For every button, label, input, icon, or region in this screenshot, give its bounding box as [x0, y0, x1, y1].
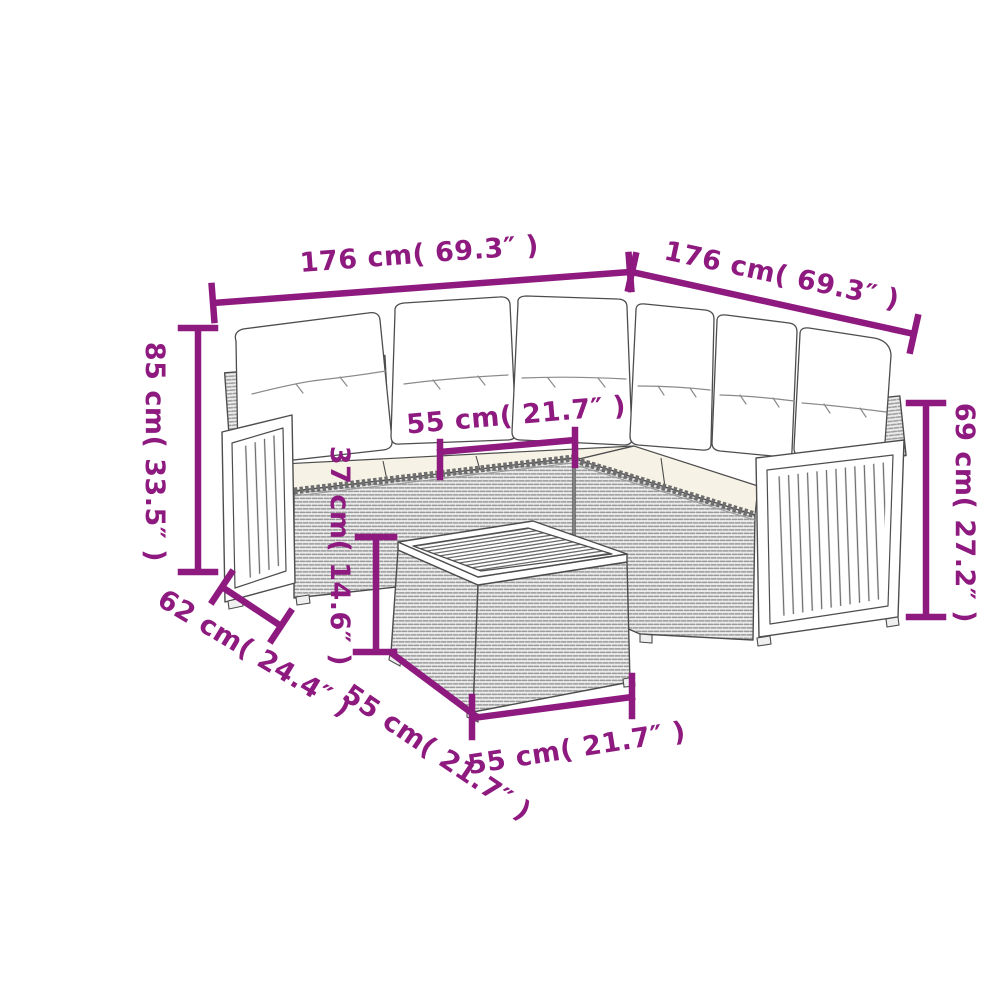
- dim-label-sofa-height: 85 cm( 33.5″ ): [139, 342, 170, 562]
- table-illustration: [389, 521, 635, 722]
- dim-label-right-side-height: 69 cm( 27.2″ ): [949, 403, 980, 623]
- back-cushion: [630, 304, 714, 450]
- dim-right-side-height: 69 cm( 27.2″ ): [909, 403, 980, 623]
- diagram-stage: 176 cm( 69.3″ ) 176 cm( 69.3″ ) 85 cm( 3…: [0, 0, 1000, 1000]
- dim-label-table-height: 37 cm( 14.6″ ): [324, 446, 355, 666]
- dim-label-table-width: 55 cm( 21.7″ ): [465, 716, 687, 781]
- furniture-dimension-diagram: 176 cm( 69.3″ ) 176 cm( 69.3″ ) 85 cm( 3…: [0, 0, 1000, 1000]
- back-cushion: [712, 315, 797, 457]
- right-armrest-panel: [756, 440, 904, 637]
- dim-sofa-height: 85 cm( 33.5″ ): [139, 328, 215, 572]
- dim-label-sofa-left-width: 176 cm( 69.3″ ): [299, 230, 540, 279]
- table-right-face: [473, 562, 630, 712]
